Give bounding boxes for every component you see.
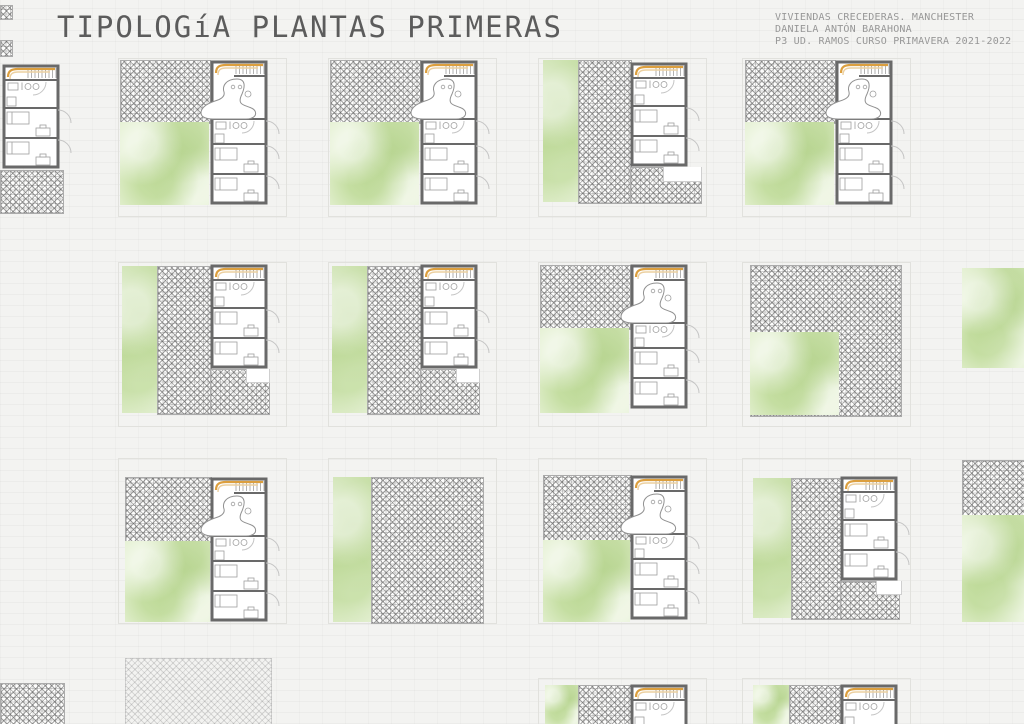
bed xyxy=(215,595,237,607)
garden-green-area xyxy=(125,541,210,622)
pod-fixture xyxy=(856,85,860,89)
sink xyxy=(863,704,869,710)
pod-fixture xyxy=(231,85,235,89)
desk xyxy=(874,540,888,548)
credits-block: VIVIENDAS CRECEDERAS. MANCHESTER DANIELA… xyxy=(775,12,1011,48)
paved-hatch-area-faint xyxy=(125,658,272,724)
shower xyxy=(425,297,434,306)
desk xyxy=(664,579,678,587)
paved-hatch-area xyxy=(0,5,13,20)
sink xyxy=(241,284,247,290)
washer xyxy=(426,283,436,290)
sink xyxy=(443,123,449,129)
stool xyxy=(245,508,251,514)
bed xyxy=(425,342,447,354)
garden-green-area xyxy=(745,122,834,205)
entry-landing xyxy=(876,581,902,595)
sink xyxy=(661,82,667,88)
housing-unit-floor-plan-compact xyxy=(210,264,268,369)
bed xyxy=(635,593,657,605)
washer xyxy=(636,81,646,88)
bed xyxy=(215,312,237,324)
paved-hatch-area xyxy=(0,683,65,724)
shower xyxy=(635,549,644,558)
garden-green-area xyxy=(962,515,1024,622)
washer xyxy=(216,539,226,546)
shower xyxy=(635,95,644,104)
bed xyxy=(7,112,29,124)
bed xyxy=(845,554,867,566)
washer xyxy=(426,122,436,129)
washer xyxy=(636,703,646,710)
sink xyxy=(233,284,239,290)
pod-fixture xyxy=(238,502,242,506)
garden-green-area xyxy=(545,685,578,724)
housing-unit-floor-plan-compact xyxy=(630,62,688,167)
desk xyxy=(244,164,258,172)
pod-fixture xyxy=(658,289,662,293)
paved-hatch-area xyxy=(962,460,1024,517)
bed xyxy=(215,148,237,160)
sink xyxy=(653,82,659,88)
bed xyxy=(635,382,657,394)
garden-green-area xyxy=(540,328,629,413)
entry-landing xyxy=(663,167,702,182)
stool xyxy=(665,506,671,512)
shower xyxy=(840,134,849,143)
paved-hatch-area xyxy=(0,170,64,214)
garden-green-area xyxy=(120,122,209,205)
desk xyxy=(36,157,50,165)
housing-unit-floor-plan-extended xyxy=(210,60,268,205)
desk xyxy=(664,126,678,134)
desk xyxy=(244,357,258,365)
shower xyxy=(7,97,16,106)
shower xyxy=(635,338,644,347)
garden-green-area xyxy=(333,477,371,622)
washer xyxy=(846,703,856,710)
site-plan-canvas: TIPOLOGíA PLANTAS PRIMERAS VIVIENDAS CRE… xyxy=(0,0,1024,724)
sink xyxy=(233,540,239,546)
sink xyxy=(233,123,239,129)
desk xyxy=(869,193,883,201)
shower xyxy=(635,717,644,724)
housing-unit-floor-plan-extended xyxy=(420,60,478,205)
housing-unit-floor-plan-compact xyxy=(420,264,478,369)
washer xyxy=(8,83,18,90)
sink xyxy=(653,538,659,544)
paved-hatch-area xyxy=(791,478,842,620)
pod-fixture xyxy=(448,85,452,89)
desk xyxy=(244,328,258,336)
garden-green-area xyxy=(330,122,419,205)
stool xyxy=(665,295,671,301)
paved-hatch-area xyxy=(540,265,631,330)
bed xyxy=(635,140,657,152)
desk xyxy=(664,368,678,376)
pod-fixture xyxy=(651,289,655,293)
paved-hatch-area xyxy=(578,685,632,724)
paved-hatch-area xyxy=(578,60,632,204)
garden-green-area xyxy=(753,478,791,618)
door-swing-arc xyxy=(58,140,71,153)
paved-hatch-area xyxy=(125,477,212,543)
desk xyxy=(454,193,468,201)
bed xyxy=(635,352,657,364)
sink xyxy=(866,123,872,129)
sink xyxy=(443,284,449,290)
garden-green-area xyxy=(332,266,367,413)
desk xyxy=(244,193,258,201)
garden-green-area xyxy=(543,540,630,622)
washer xyxy=(636,537,646,544)
sink xyxy=(661,704,667,710)
entry-landing xyxy=(456,369,480,383)
shower xyxy=(215,297,224,306)
sink xyxy=(871,704,877,710)
washer xyxy=(636,326,646,333)
desk xyxy=(454,328,468,336)
paved-hatch-area xyxy=(371,477,484,624)
garden-green-area xyxy=(753,685,789,724)
door-swing-arc xyxy=(58,110,71,123)
housing-unit-floor-plan-extended xyxy=(630,475,688,620)
paved-hatch-area xyxy=(543,475,632,542)
housing-unit-floor-plan-compact xyxy=(840,476,898,581)
garden-green-area xyxy=(543,60,578,202)
garden-green-area xyxy=(122,266,157,413)
pod-fixture xyxy=(231,502,235,506)
housing-unit-floor-plan-extended xyxy=(210,477,268,622)
desk xyxy=(869,164,883,172)
credit-line-project: VIVIENDAS CRECEDERAS. MANCHESTER xyxy=(775,12,1011,24)
page-title: TIPOLOGíA PLANTAS PRIMERAS xyxy=(57,10,563,44)
shower xyxy=(425,134,434,143)
bed xyxy=(840,148,862,160)
bed xyxy=(425,148,447,160)
washer xyxy=(216,283,226,290)
bed xyxy=(845,524,867,536)
bed xyxy=(215,178,237,190)
bed xyxy=(635,110,657,122)
bed xyxy=(635,563,657,575)
paved-hatch-area xyxy=(0,40,13,57)
bed xyxy=(215,565,237,577)
sink xyxy=(33,84,39,90)
washer xyxy=(216,122,226,129)
sink xyxy=(871,496,877,502)
sink xyxy=(858,123,864,129)
desk xyxy=(244,581,258,589)
desk xyxy=(664,155,678,163)
garden-green-area xyxy=(750,332,839,415)
pod-fixture xyxy=(863,85,867,89)
bed xyxy=(425,312,447,324)
stool xyxy=(245,91,251,97)
washer xyxy=(846,495,856,502)
sink xyxy=(661,327,667,333)
bed xyxy=(215,342,237,354)
stool xyxy=(870,91,876,97)
desk xyxy=(454,357,468,365)
paved-hatch-area xyxy=(330,60,421,124)
housing-unit-floor-plan-compact xyxy=(2,64,60,169)
housing-unit-floor-plan-compact xyxy=(840,684,898,724)
sink xyxy=(241,123,247,129)
pod-fixture xyxy=(658,500,662,504)
credit-line-author: DANIELA ANTÓN BARAHONA xyxy=(775,24,1011,36)
bed xyxy=(7,142,29,154)
desk xyxy=(244,610,258,618)
washer xyxy=(841,122,851,129)
sink xyxy=(451,123,457,129)
paved-hatch-area xyxy=(120,60,211,124)
paved-hatch-area xyxy=(367,266,422,415)
sink xyxy=(653,327,659,333)
shower xyxy=(845,717,854,724)
desk xyxy=(36,128,50,136)
housing-unit-floor-plan-compact xyxy=(630,684,688,724)
sink xyxy=(653,704,659,710)
paved-hatch-area xyxy=(789,685,842,724)
desk xyxy=(664,397,678,405)
sink xyxy=(25,84,31,90)
garden-green-area xyxy=(962,268,1024,368)
housing-unit-floor-plan-extended xyxy=(630,264,688,409)
entry-landing xyxy=(246,369,270,383)
credit-line-course: P3 UD. RAMOS CURSO PRIMAVERA 2021-2022 xyxy=(775,36,1011,48)
desk xyxy=(454,164,468,172)
desk xyxy=(664,608,678,616)
shower xyxy=(215,551,224,560)
pod-fixture xyxy=(238,85,242,89)
sink xyxy=(661,538,667,544)
sink xyxy=(451,284,457,290)
housing-unit-floor-plan-extended xyxy=(835,60,893,205)
pod-fixture xyxy=(651,500,655,504)
shower xyxy=(845,509,854,518)
bed xyxy=(840,178,862,190)
paved-hatch-area xyxy=(745,60,836,124)
sink xyxy=(863,496,869,502)
paved-hatch-area xyxy=(157,266,212,415)
pod-fixture xyxy=(441,85,445,89)
bed xyxy=(425,178,447,190)
sink xyxy=(241,540,247,546)
desk xyxy=(874,569,888,577)
stool xyxy=(455,91,461,97)
shower xyxy=(215,134,224,143)
